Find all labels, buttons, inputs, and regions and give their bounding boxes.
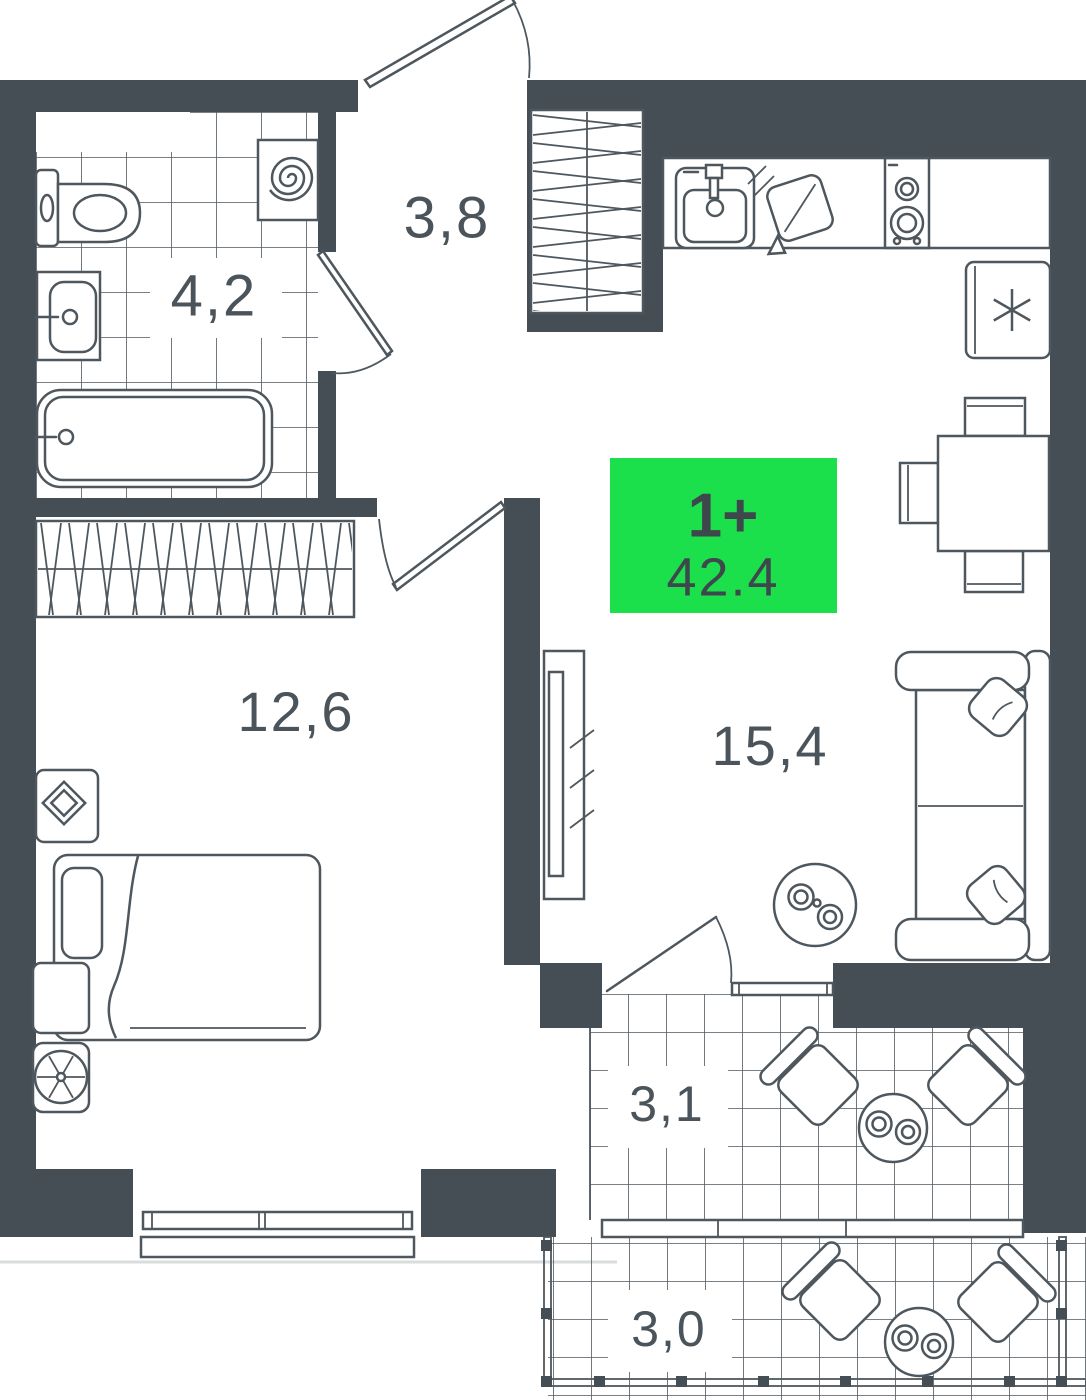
kitchen-sink-symbol — [676, 165, 754, 248]
entry-wardrobe-symbol — [531, 110, 643, 313]
ventilation-fan-symbol — [33, 1043, 89, 1112]
bathroom-sink-symbol — [36, 272, 100, 360]
room-label-balcony: 3,1 — [629, 1076, 705, 1132]
floor-plan-page: 4,2 3,8 12,6 15,4 3,1 3,0 1+ 42.4 — [0, 0, 1086, 1400]
room-label-hallway: 3,8 — [404, 185, 491, 250]
badge-area-label: 42.4 — [666, 547, 779, 607]
room-label-terrace: 3,0 — [631, 1301, 707, 1357]
bed-symbol — [54, 855, 320, 1040]
sofa-symbol — [896, 651, 1050, 960]
room-label-bedroom: 12,6 — [238, 680, 355, 743]
washing-machine-symbol — [258, 140, 318, 220]
badge-type-label: 1+ — [688, 481, 759, 550]
coffee-table-symbol — [774, 864, 856, 946]
terrace-table-symbol — [885, 1308, 953, 1376]
fridge-symbol — [966, 262, 1050, 358]
bedroom-wardrobe-symbol — [36, 521, 354, 617]
balcony-window-panel — [732, 983, 833, 995]
plan-type-badge: 1+ 42.4 — [610, 458, 837, 613]
nightstand-lamp-symbol — [36, 770, 98, 842]
nightstand-symbol — [33, 963, 89, 1033]
room-label-bathroom: 4,2 — [171, 263, 258, 328]
bathtub-symbol — [36, 390, 272, 487]
balcony-table-symbol — [859, 1094, 927, 1162]
room-label-living-kitchen: 15,4 — [712, 714, 829, 777]
floor-plan-canvas: 4,2 3,8 12,6 15,4 3,1 3,0 1+ 42.4 — [0, 0, 1086, 1400]
